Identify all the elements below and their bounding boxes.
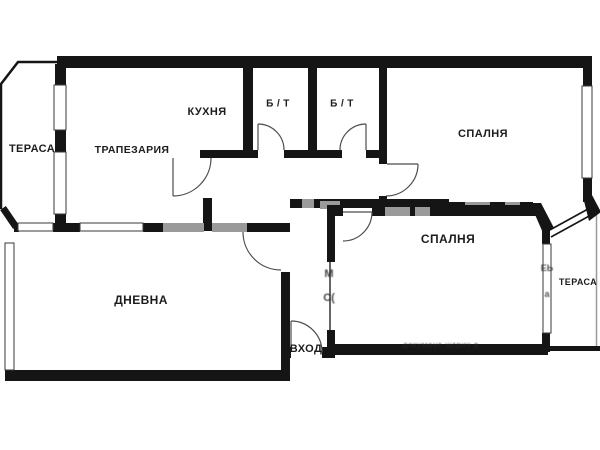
watermark-bottom-text: документ щтрих в ......... bbox=[403, 341, 507, 350]
room-label-entrance: ВХОД bbox=[290, 343, 322, 355]
floor-plan-drawing bbox=[0, 0, 600, 450]
door-bedroom1 bbox=[386, 164, 418, 196]
room-label-bath2: Б / Т bbox=[330, 99, 354, 110]
room-label-kitchen: КУХНЯ bbox=[187, 106, 226, 118]
room-label-living: ДНЕВНА bbox=[114, 293, 168, 307]
floor-plan: ТЕРАСА ТРАПЕЗАРИЯ КУХНЯ Б / Т Б / Т СПАЛ… bbox=[0, 0, 600, 450]
room-label-terrace-left: ТЕРАСА bbox=[9, 143, 55, 155]
diagonal-window bbox=[548, 209, 591, 237]
door-bedroom2 bbox=[343, 212, 372, 241]
room-label-bedroom2: СПАЛНЯ bbox=[421, 232, 475, 246]
room-label-dining: ТРАПЕЗАРИЯ bbox=[95, 144, 170, 156]
door-bath2 bbox=[340, 124, 366, 150]
door-dining bbox=[173, 158, 211, 196]
door-living bbox=[243, 232, 281, 270]
watermark-terrace-text: ЕЬа bbox=[540, 255, 554, 307]
walls-layer bbox=[5, 56, 600, 381]
watermark-corridor-text: МС( bbox=[322, 262, 336, 310]
room-label-bedroom1: СПАЛНЯ bbox=[458, 128, 508, 140]
door-bath1 bbox=[258, 124, 284, 150]
room-label-bath1: Б / Т bbox=[266, 99, 290, 110]
room-label-terrace-right: ТЕРАСА bbox=[559, 277, 597, 287]
